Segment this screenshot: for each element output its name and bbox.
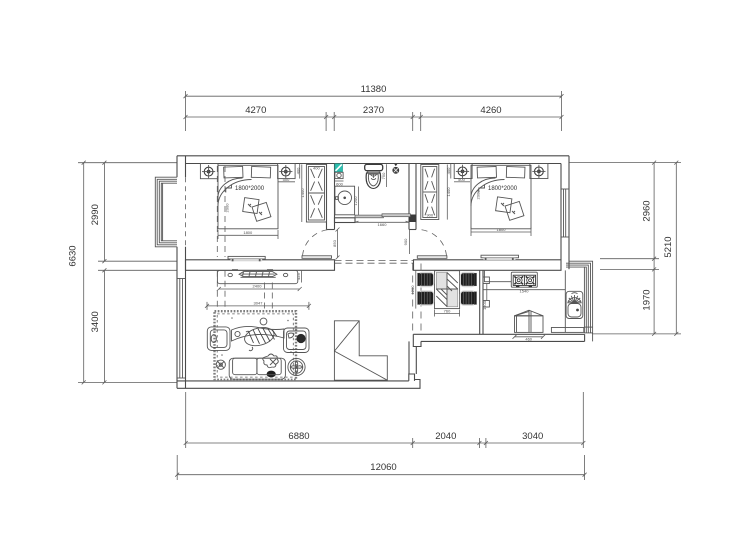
svg-text:2040: 2040 <box>435 431 456 442</box>
svg-text:11380: 11380 <box>361 84 387 95</box>
svg-text:423: 423 <box>296 272 301 279</box>
svg-text:2370: 2370 <box>363 105 384 116</box>
svg-text:400: 400 <box>313 166 320 171</box>
svg-text:1540: 1540 <box>520 289 530 294</box>
svg-text:1200: 1200 <box>410 285 415 295</box>
svg-text:400: 400 <box>296 167 301 174</box>
svg-text:400: 400 <box>446 167 451 174</box>
svg-text:900: 900 <box>403 238 408 245</box>
svg-text:850: 850 <box>332 239 337 246</box>
svg-text:600: 600 <box>336 181 343 186</box>
svg-text:1800: 1800 <box>497 227 507 232</box>
svg-text:500: 500 <box>458 177 465 182</box>
svg-text:750: 750 <box>381 172 386 179</box>
svg-text:2990: 2990 <box>90 204 101 225</box>
svg-text:1800*2000: 1800*2000 <box>235 186 265 192</box>
svg-text:4260: 4260 <box>480 105 501 116</box>
svg-text:6880: 6880 <box>288 431 309 442</box>
svg-text:900: 900 <box>426 213 433 218</box>
svg-text:3400: 3400 <box>90 311 101 332</box>
svg-text:1970: 1970 <box>641 289 652 310</box>
svg-text:1400: 1400 <box>446 187 451 197</box>
svg-text:4270: 4270 <box>245 105 266 116</box>
svg-text:12060: 12060 <box>370 462 396 473</box>
svg-text:1660: 1660 <box>378 222 388 227</box>
svg-text:1400: 1400 <box>300 188 305 198</box>
svg-text:5210: 5210 <box>663 236 674 257</box>
svg-text:460: 460 <box>525 337 532 342</box>
svg-text:2000: 2000 <box>476 190 481 200</box>
svg-text:1500: 1500 <box>482 300 487 310</box>
svg-text:1800: 1800 <box>243 230 253 235</box>
svg-text:1800*2000: 1800*2000 <box>488 186 518 192</box>
svg-text:500: 500 <box>283 177 290 182</box>
svg-text:2960: 2960 <box>641 200 652 221</box>
svg-text:760: 760 <box>444 308 451 313</box>
svg-text:3047: 3047 <box>254 301 264 306</box>
svg-text:1200: 1200 <box>353 196 358 206</box>
svg-text:2400: 2400 <box>253 284 263 289</box>
svg-text:3040: 3040 <box>522 431 543 442</box>
svg-text:6630: 6630 <box>68 245 79 266</box>
